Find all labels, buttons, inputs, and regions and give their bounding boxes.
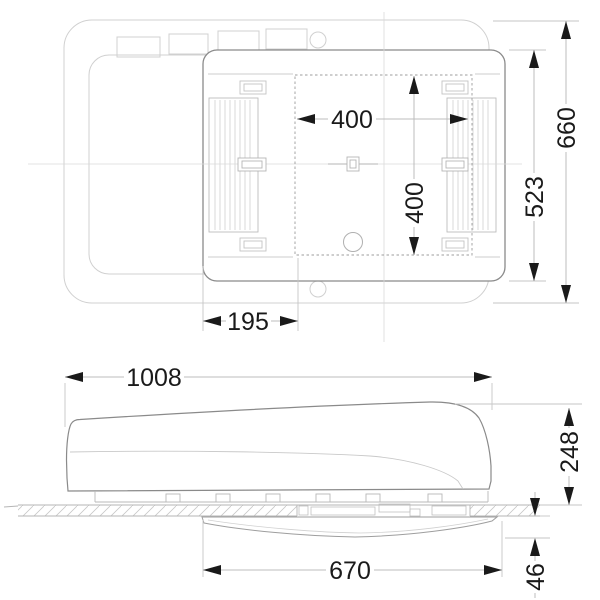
dim-label-edge-to-cutout: 195 — [227, 308, 269, 336]
interior-unit-profile — [202, 517, 497, 537]
dim-unit-width: 523 — [509, 50, 549, 281]
roof-fitting-4 — [266, 29, 307, 49]
unit-side-profile — [67, 402, 492, 491]
roof-fitting-1 — [117, 37, 160, 57]
dim-label-cutout-length: 400 — [401, 182, 429, 224]
technical-drawing: 400 400 195 523 — [0, 0, 600, 600]
side-view: 1008 — [4, 364, 584, 598]
roof-section — [4, 504, 540, 516]
dim-label-height-above-roof: 248 — [556, 431, 584, 473]
base-gasket — [95, 491, 488, 502]
roof-screw-hole-top — [310, 32, 326, 48]
dim-label-interior-height: 46 — [522, 563, 550, 591]
roof-hatch-right — [470, 505, 540, 516]
roof-hatch-left — [18, 505, 297, 516]
roof-fitting-3 — [218, 31, 259, 51]
top-view: 400 400 195 523 — [28, 12, 581, 342]
dim-label-overall-width: 660 — [553, 107, 581, 149]
rooftop-ac-dimension-drawing: 400 400 195 523 — [0, 0, 600, 600]
dim-label-cutout-width: 400 — [331, 106, 373, 134]
duct-details — [299, 504, 466, 516]
dim-label-unit-width: 523 — [521, 176, 549, 218]
roof-fitting-2 — [169, 34, 208, 54]
dim-label-overall-length: 1008 — [126, 364, 182, 392]
dim-label-interior-length: 670 — [329, 557, 371, 585]
roof-screw-hole-bottom — [310, 281, 326, 297]
